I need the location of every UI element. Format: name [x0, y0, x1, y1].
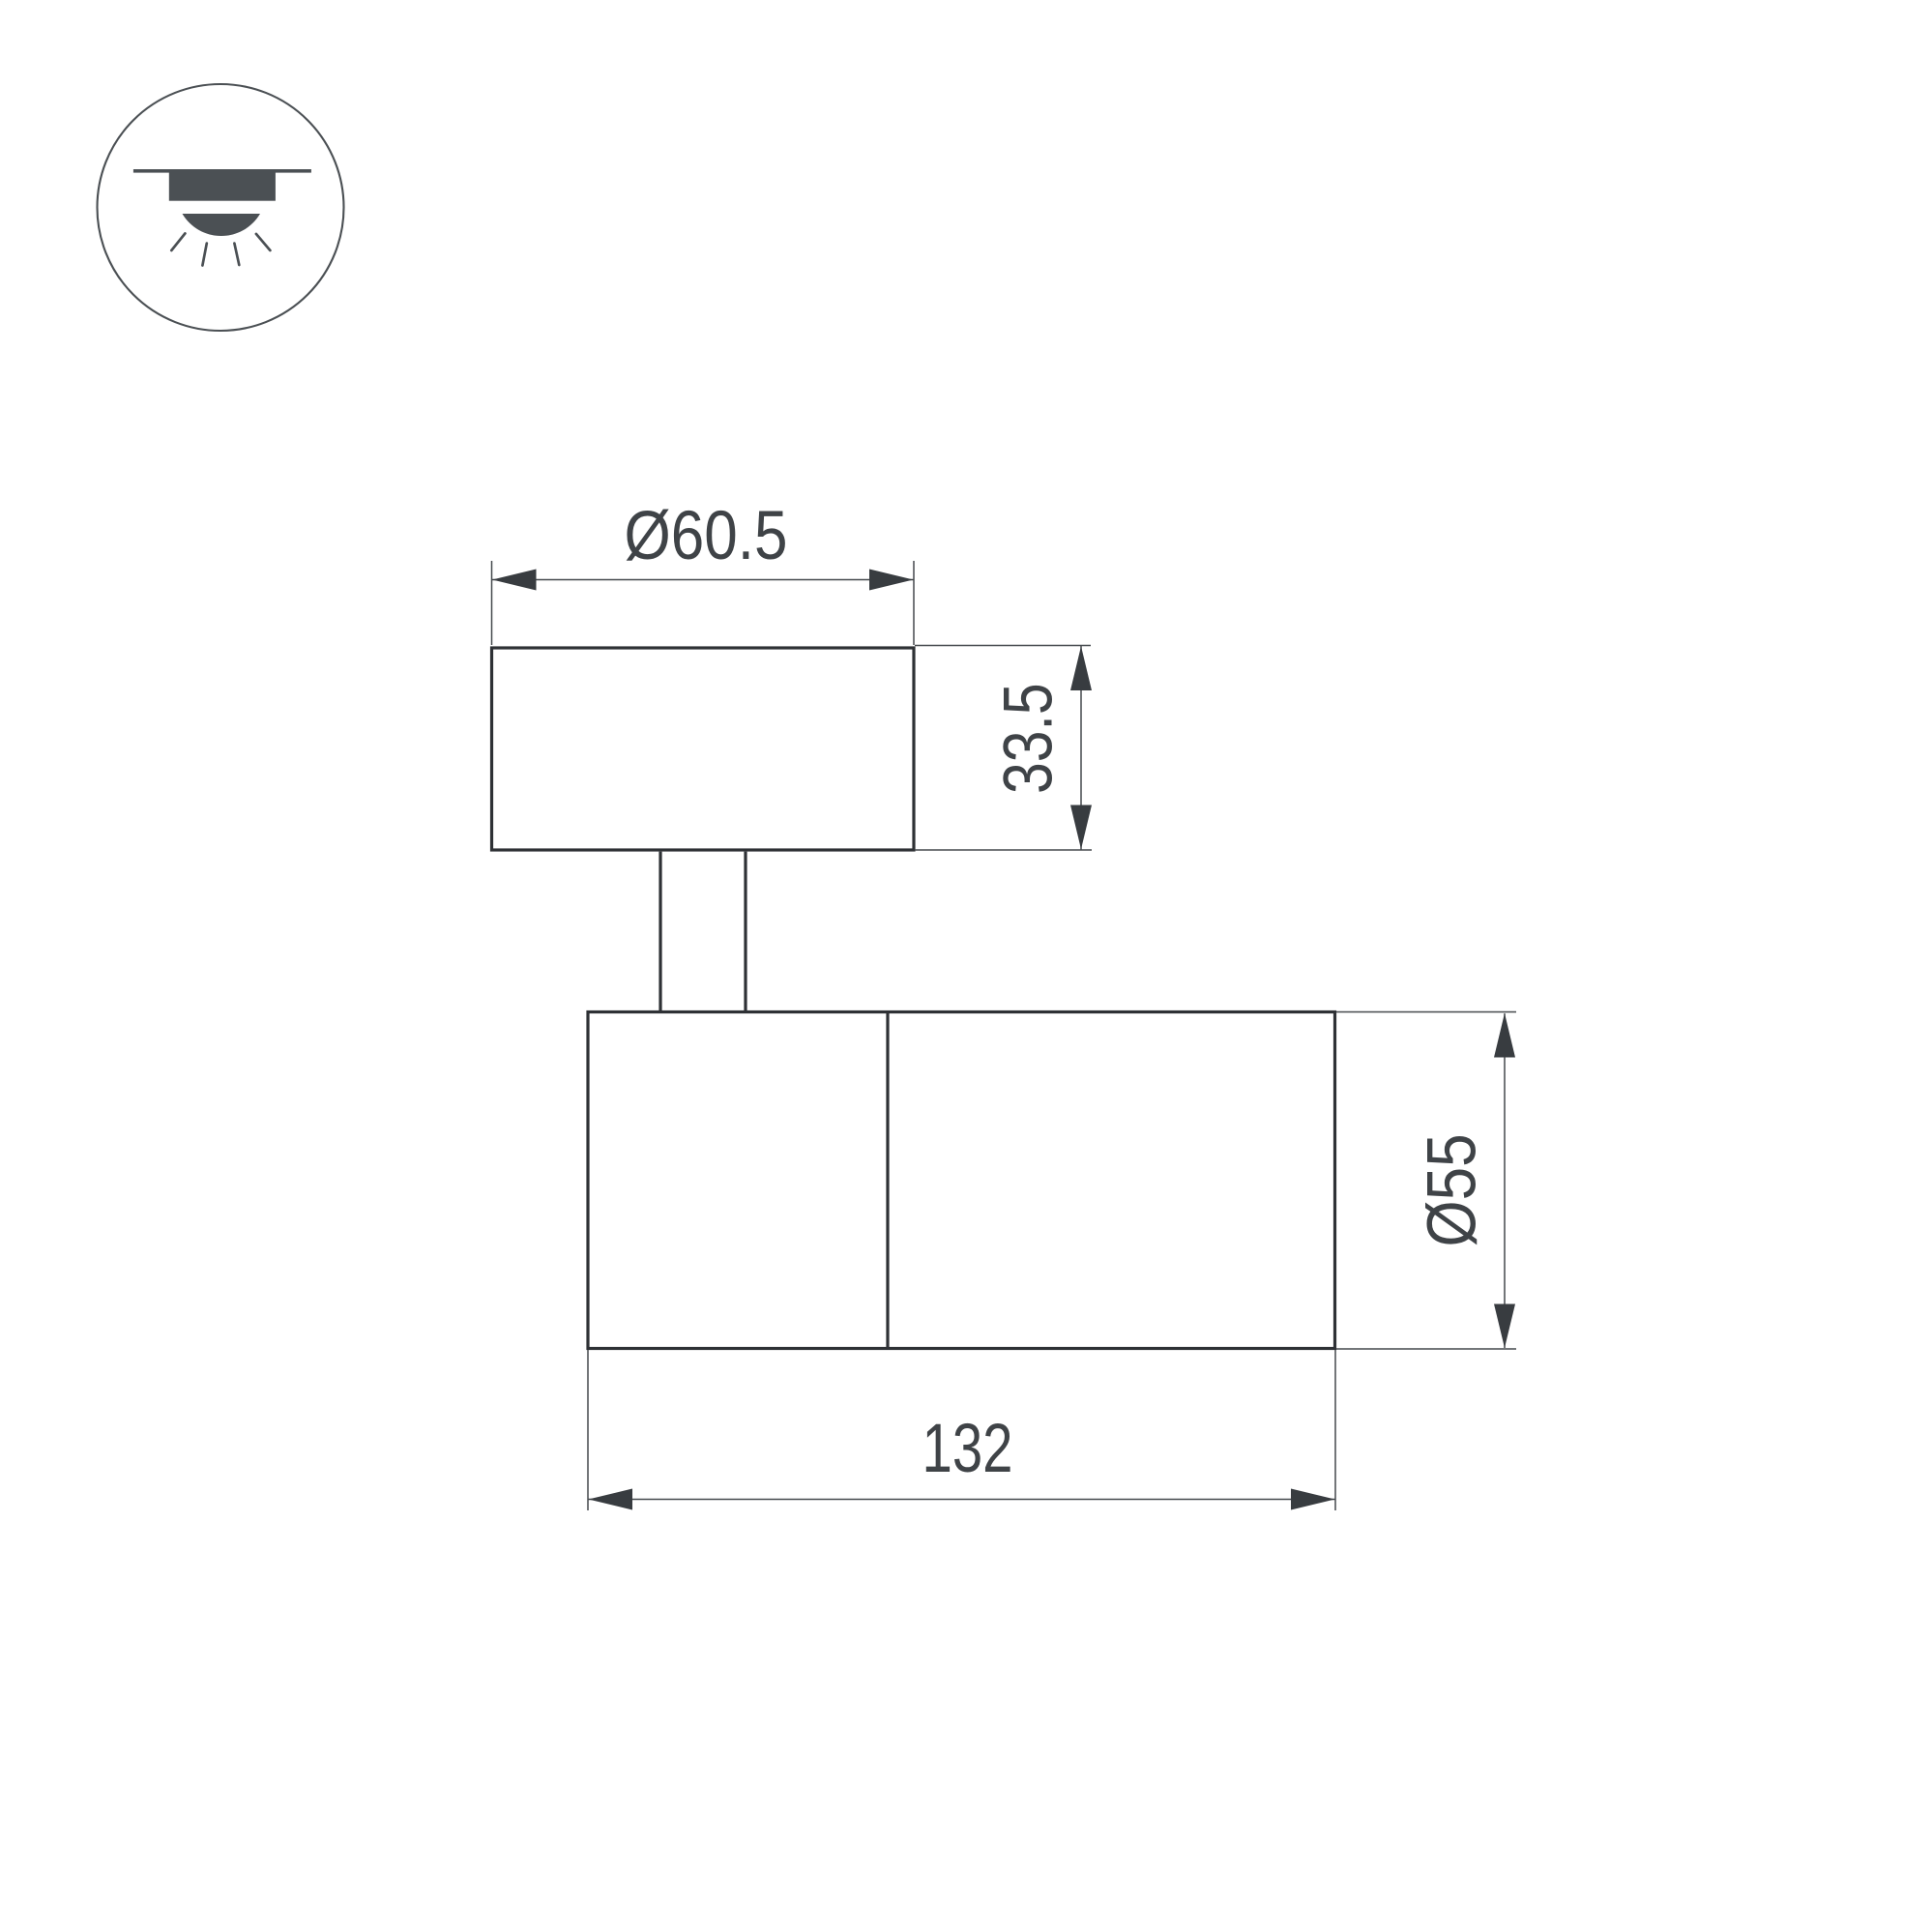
svg-text:132: 132	[922, 1411, 1013, 1487]
svg-text:Ø60.5: Ø60.5	[625, 498, 788, 574]
svg-text:Ø55: Ø55	[1415, 1134, 1491, 1247]
svg-text:33.5: 33.5	[990, 683, 1067, 794]
